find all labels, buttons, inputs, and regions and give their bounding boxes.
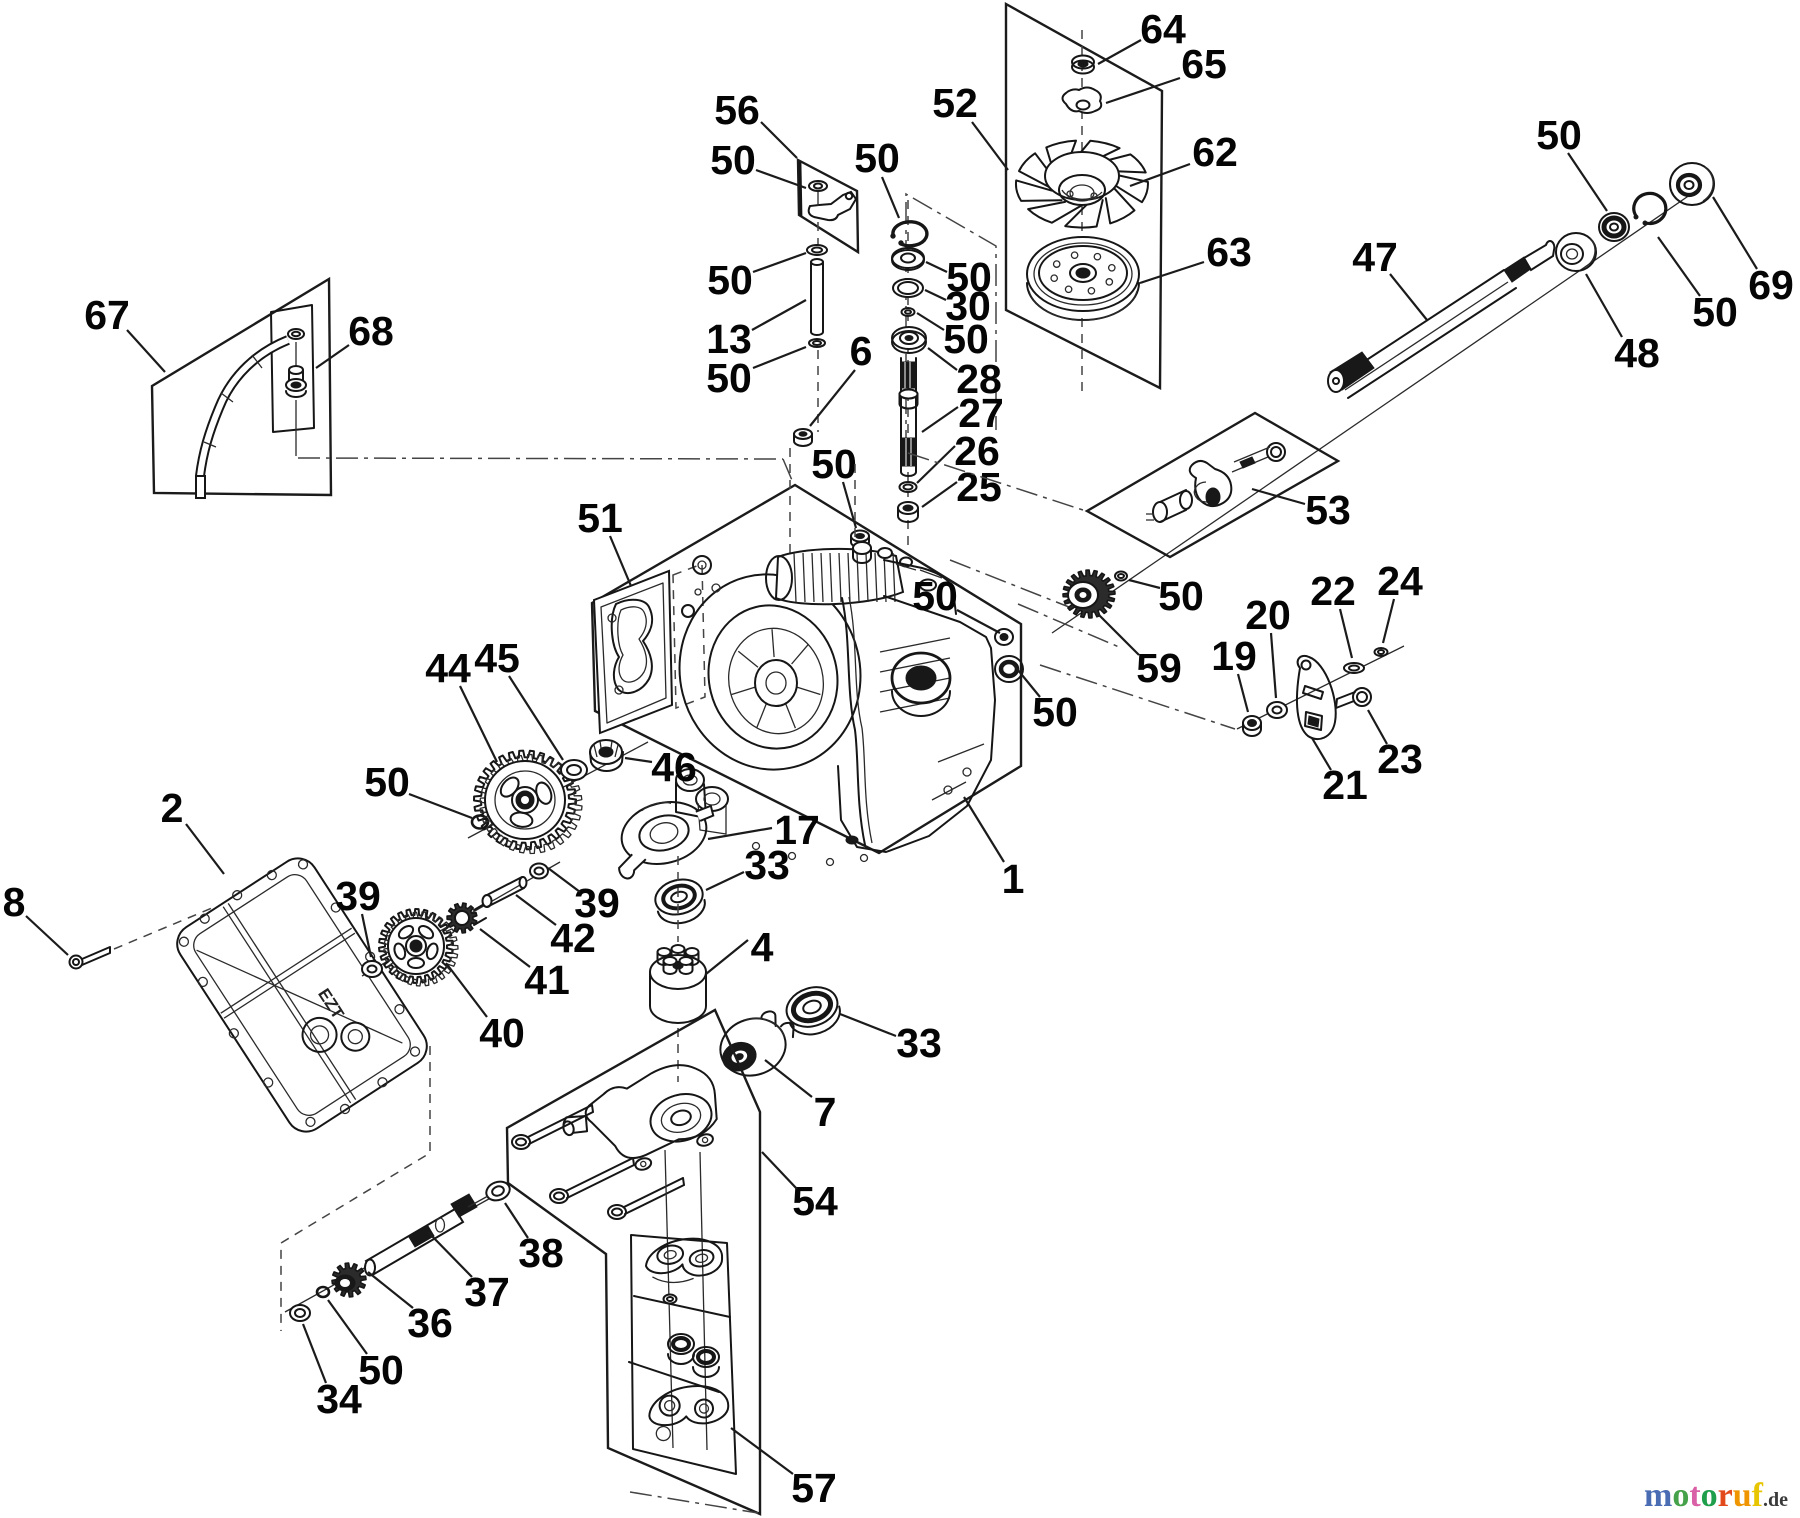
svg-text:6: 6 xyxy=(850,328,873,374)
svg-text:38: 38 xyxy=(518,1230,564,1276)
svg-text:21: 21 xyxy=(1322,762,1368,808)
svg-text:7: 7 xyxy=(814,1089,837,1135)
svg-text:54: 54 xyxy=(792,1178,838,1224)
svg-text:52: 52 xyxy=(932,80,978,126)
svg-text:67: 67 xyxy=(84,292,130,338)
svg-text:4: 4 xyxy=(751,924,774,970)
svg-text:50: 50 xyxy=(912,573,958,619)
svg-text:8: 8 xyxy=(3,879,26,925)
svg-text:59: 59 xyxy=(1136,645,1182,691)
svg-text:47: 47 xyxy=(1352,234,1398,280)
svg-text:24: 24 xyxy=(1377,558,1423,604)
svg-text:19: 19 xyxy=(1211,633,1257,679)
svg-text:33: 33 xyxy=(896,1020,942,1066)
svg-text:41: 41 xyxy=(524,957,570,1003)
svg-text:22: 22 xyxy=(1310,568,1356,614)
svg-text:36: 36 xyxy=(407,1300,453,1346)
svg-text:50: 50 xyxy=(364,759,410,805)
svg-text:56: 56 xyxy=(714,87,760,133)
svg-text:51: 51 xyxy=(577,495,623,541)
svg-text:63: 63 xyxy=(1206,229,1252,275)
svg-text:45: 45 xyxy=(474,635,520,681)
svg-text:53: 53 xyxy=(1305,487,1351,533)
svg-text:23: 23 xyxy=(1377,736,1423,782)
svg-text:50: 50 xyxy=(1158,573,1204,619)
svg-text:50: 50 xyxy=(358,1347,404,1393)
svg-text:62: 62 xyxy=(1192,129,1238,175)
svg-text:39: 39 xyxy=(335,873,381,919)
svg-text:69: 69 xyxy=(1748,262,1794,308)
svg-text:64: 64 xyxy=(1140,6,1186,52)
svg-text:50: 50 xyxy=(811,441,857,487)
svg-text:57: 57 xyxy=(791,1465,837,1511)
svg-text:44: 44 xyxy=(425,645,471,691)
svg-text:1: 1 xyxy=(1002,856,1025,902)
svg-text:46: 46 xyxy=(651,744,697,790)
svg-text:33: 33 xyxy=(744,842,790,888)
svg-text:2: 2 xyxy=(161,785,184,831)
svg-text:65: 65 xyxy=(1181,41,1227,87)
svg-text:50: 50 xyxy=(710,137,756,183)
svg-text:50: 50 xyxy=(854,135,900,181)
svg-text:20: 20 xyxy=(1245,592,1291,638)
svg-text:50: 50 xyxy=(706,355,752,401)
svg-text:34: 34 xyxy=(316,1376,362,1422)
svg-text:50: 50 xyxy=(707,257,753,303)
svg-text:68: 68 xyxy=(348,308,394,354)
svg-text:50: 50 xyxy=(1536,112,1582,158)
svg-text:39: 39 xyxy=(574,880,620,926)
